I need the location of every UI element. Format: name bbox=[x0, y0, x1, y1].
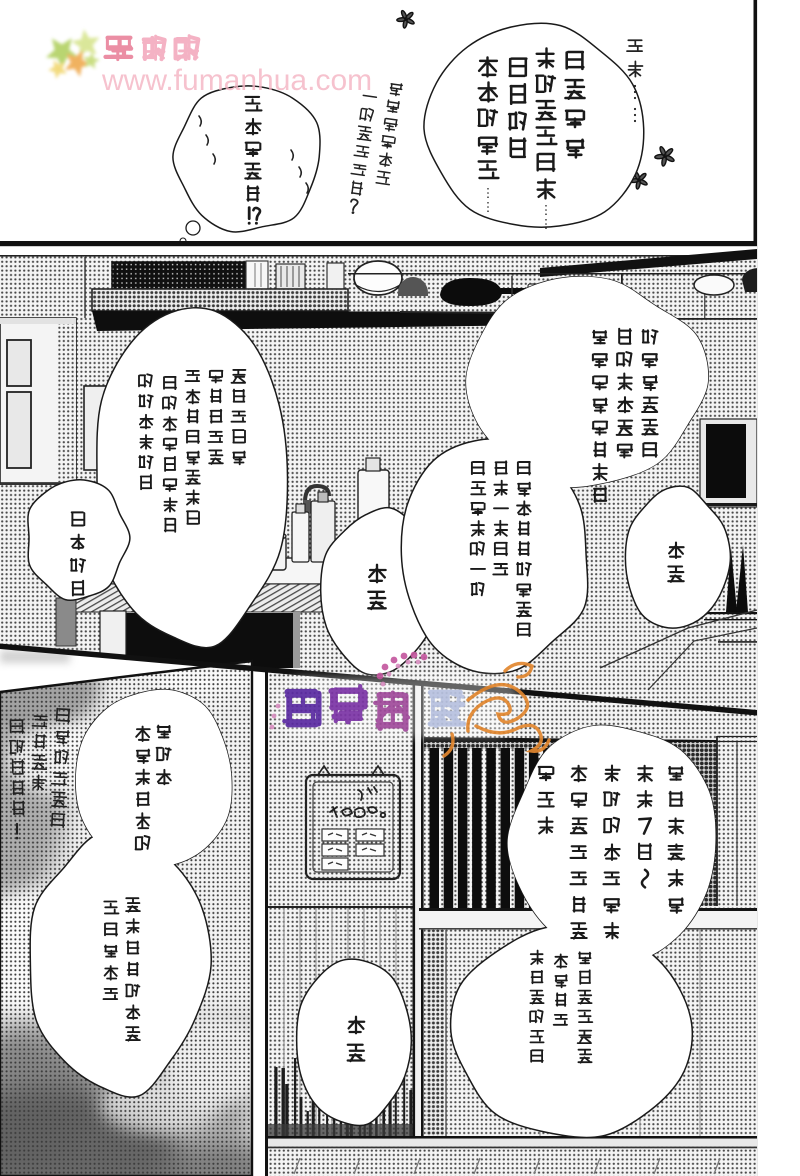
svg-text:www.fumanhua.com: www.fumanhua.com bbox=[101, 64, 372, 97]
